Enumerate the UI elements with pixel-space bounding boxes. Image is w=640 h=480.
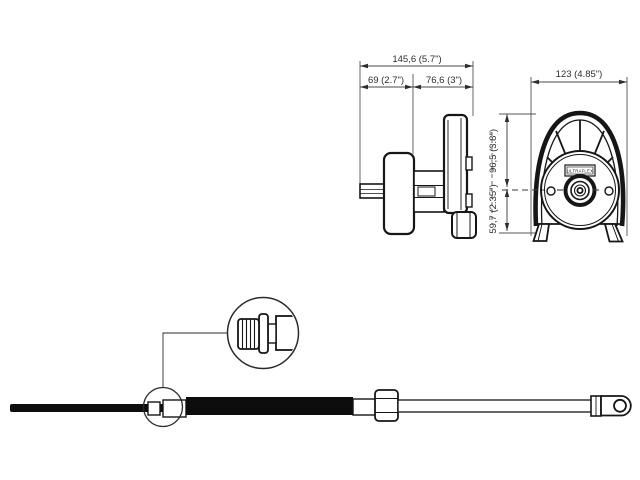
detail-callout — [228, 298, 317, 369]
cable-hex-nut — [375, 390, 398, 421]
dimension-label-center-to-top: 96,5 (3.8") — [488, 129, 499, 173]
mounting-foot-right — [605, 224, 623, 242]
mounting-plate — [444, 115, 472, 213]
dimension-label-rear-section: 69 (2.7") — [368, 75, 404, 86]
cable-eye-end — [601, 396, 631, 416]
brand-plate-label: ULTRAFLEX — [567, 169, 593, 174]
dimension-label-front-section: 76,6 (3") — [426, 75, 462, 86]
dimension-label-overall-width: 145,6 (5.7") — [392, 54, 441, 65]
connector-neck — [268, 324, 276, 343]
cable-connector-collar — [148, 402, 160, 415]
mounting-foot-left — [534, 224, 550, 241]
callout-leader-line — [163, 333, 228, 388]
cable-assembly — [10, 333, 631, 427]
helm-front-view: 123 (4.85") 96,5 (3.8") 59,7 (2.35") — [488, 69, 627, 242]
cable-jacket — [186, 397, 353, 415]
connector-flange — [259, 314, 268, 353]
helm-side-view: 145,6 (5.7") 69 (2.7") 76,6 (3") — [360, 54, 492, 238]
connector-threads — [238, 319, 259, 349]
cable-outer-tube — [398, 400, 592, 412]
cable-sleeve — [353, 399, 376, 415]
cable-inner-rod — [10, 404, 188, 412]
dimension-label-front-width: 123 (4.85") — [556, 69, 603, 80]
dimension-label-center-to-base: 59,7 (2.35") — [488, 184, 499, 233]
mounting-hole-right — [605, 187, 613, 195]
scanned-technical-drawing: 145,6 (5.7") 69 (2.7") 76,6 (3") — [0, 0, 640, 480]
cable-outlet-tube — [452, 212, 476, 238]
threaded-connector-detail — [238, 314, 316, 353]
helm-bezel — [384, 153, 414, 234]
steering-shaft — [360, 184, 384, 198]
mounting-hole-left — [547, 187, 555, 195]
helm-mid-housing — [414, 171, 444, 212]
cable-ferrule — [591, 396, 601, 416]
